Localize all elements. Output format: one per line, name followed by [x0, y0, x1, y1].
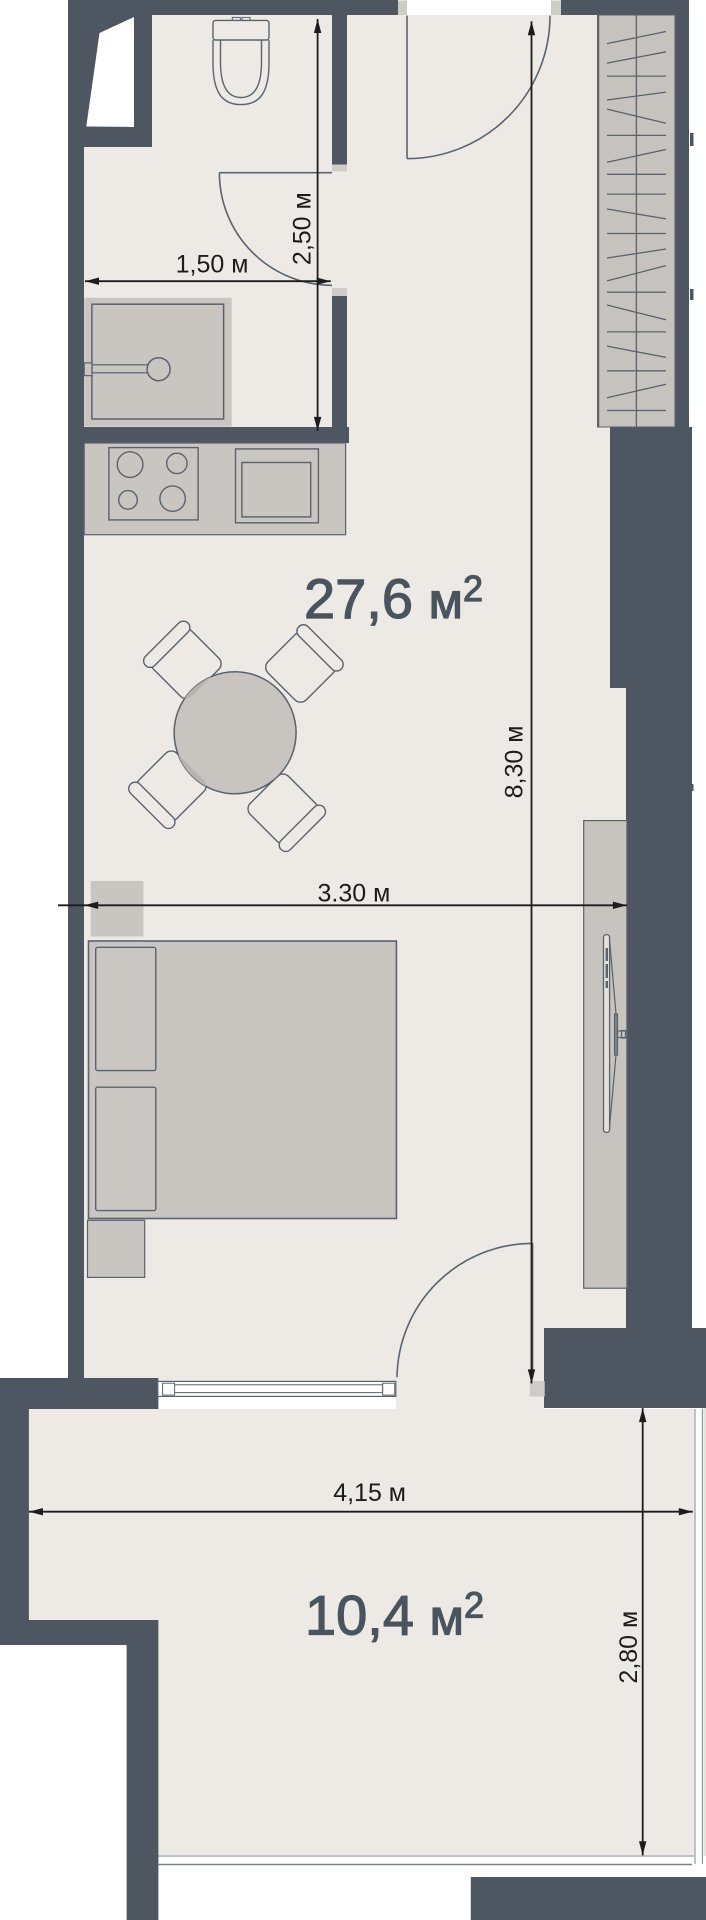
svg-text:1,50 м: 1,50 м	[176, 251, 249, 279]
svg-text:27,6 м2: 27,6 м2	[304, 567, 483, 630]
svg-text:8,30 м: 8,30 м	[501, 726, 529, 799]
svg-text:3.30 м: 3.30 м	[318, 880, 391, 908]
svg-text:4,15 м: 4,15 м	[333, 1479, 406, 1507]
svg-text:10,4 м2: 10,4 м2	[305, 1584, 484, 1647]
svg-text:2,80 м: 2,80 м	[615, 1611, 643, 1684]
svg-text:2,50 м: 2,50 м	[289, 192, 317, 265]
